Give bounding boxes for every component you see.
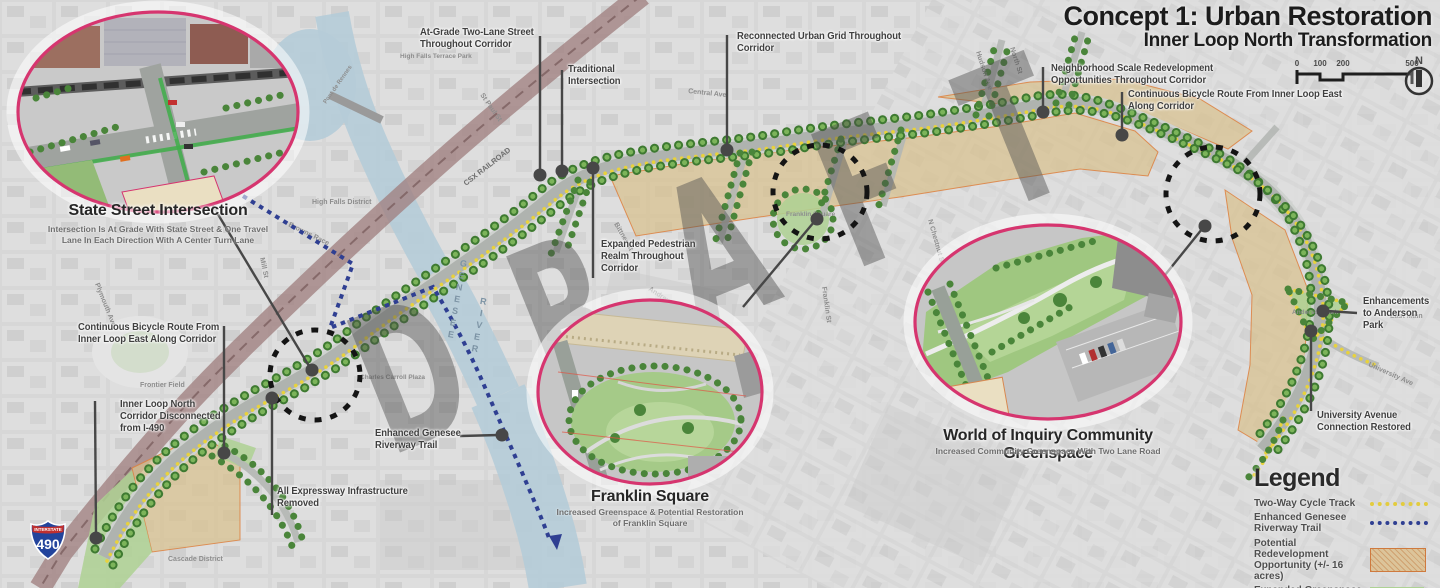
world-of-inquiry-inset-title: World of Inquiry Community Greenspace <box>898 427 1198 463</box>
scale-tick-100: 100 <box>1313 59 1327 68</box>
callout-disconnected-i490: Inner Loop North Corridor Disconnected f… <box>120 399 233 434</box>
redevelopment-swatch <box>1370 548 1426 572</box>
label-high-falls-terrace-park: High Falls Terrace Park <box>400 53 472 60</box>
legend-title: Legend <box>1254 464 1440 493</box>
callout-anderson-park: Enhancements to Anderson Park <box>1363 296 1440 331</box>
legend-row-redevelopment: Potential Redevelopment Opportunity (+/-… <box>1254 538 1440 583</box>
franklin-square-inset-title: Franklin Square <box>540 488 760 506</box>
svg-text:490: 490 <box>36 536 60 552</box>
label-franklin-square-map: Franklin Square <box>786 211 836 218</box>
callout-reconnected-grid: Reconnected Urban Grid Throughout Corrid… <box>737 31 917 55</box>
legend-row-cycle-track: Two-Way Cycle Track <box>1254 498 1440 509</box>
world-of-inquiry-inset-desc: Increased Community Greenspace With Two … <box>923 446 1173 457</box>
svg-text:N: N <box>1415 55 1423 67</box>
franklin-square-inset-desc: Increased Greenspace & Potential Restora… <box>555 507 745 529</box>
state-street-inset-desc: Intersection Is At Grade With State Stre… <box>43 224 273 246</box>
callout-riverway-trail: Enhanced Genesee Riverway Trail <box>375 428 465 452</box>
callout-bike-route-east: Continuous Bicycle Route From Inner Loop… <box>1128 89 1362 113</box>
page-subtitle: Inner Loop North Transformation <box>1063 31 1432 52</box>
scale-tick-200: 200 <box>1336 59 1350 68</box>
scale-tick-0: 0 <box>1295 59 1300 68</box>
callout-neighborhood-redevelopment: Neighborhood Scale Redevelopment Opportu… <box>1051 63 1249 87</box>
world-of-inquiry-inset-image <box>909 219 1188 425</box>
label-high-falls-district: High Falls District <box>312 199 372 206</box>
callout-expressway-removed: All Expressway Infrastructure Removed <box>277 486 426 510</box>
legend-row-riverway-trail: Enhanced Genesee Riverway Trail <box>1254 512 1440 534</box>
title-block: Concept 1: Urban Restoration Inner Loop … <box>1063 2 1432 52</box>
franklin-square-inset-image <box>532 294 778 490</box>
callout-traditional-intersection: Traditional Intersection <box>568 64 640 88</box>
state-street-inset-image <box>12 6 306 220</box>
label-cascade-district: Cascade District <box>168 556 224 563</box>
page-title: Concept 1: Urban Restoration <box>1063 2 1432 31</box>
label-frontier-field: Frontier Field <box>140 382 185 389</box>
callout-pedestrian-realm: Expanded Pedestrian Realm Throughout Cor… <box>601 239 705 274</box>
state-street-inset-title: State Street Intersection <box>28 202 288 220</box>
cycle-track-swatch <box>1370 502 1428 506</box>
concept-plan-map: High Falls Terrace Park St Paul St Centr… <box>0 0 1440 588</box>
callout-bike-route-west: Continuous Bicycle Route From Inner Loop… <box>78 322 224 346</box>
riverway-trail-swatch <box>1370 521 1428 525</box>
legend: Legend Two-Way Cycle Track Enhanced Gene… <box>1254 464 1440 588</box>
svg-text:INTERSTATE: INTERSTATE <box>34 527 62 532</box>
callout-at-grade-street: At-Grade Two-Lane Street Throughout Corr… <box>420 27 546 51</box>
callout-university-avenue: University Avenue Connection Restored <box>1317 410 1425 434</box>
